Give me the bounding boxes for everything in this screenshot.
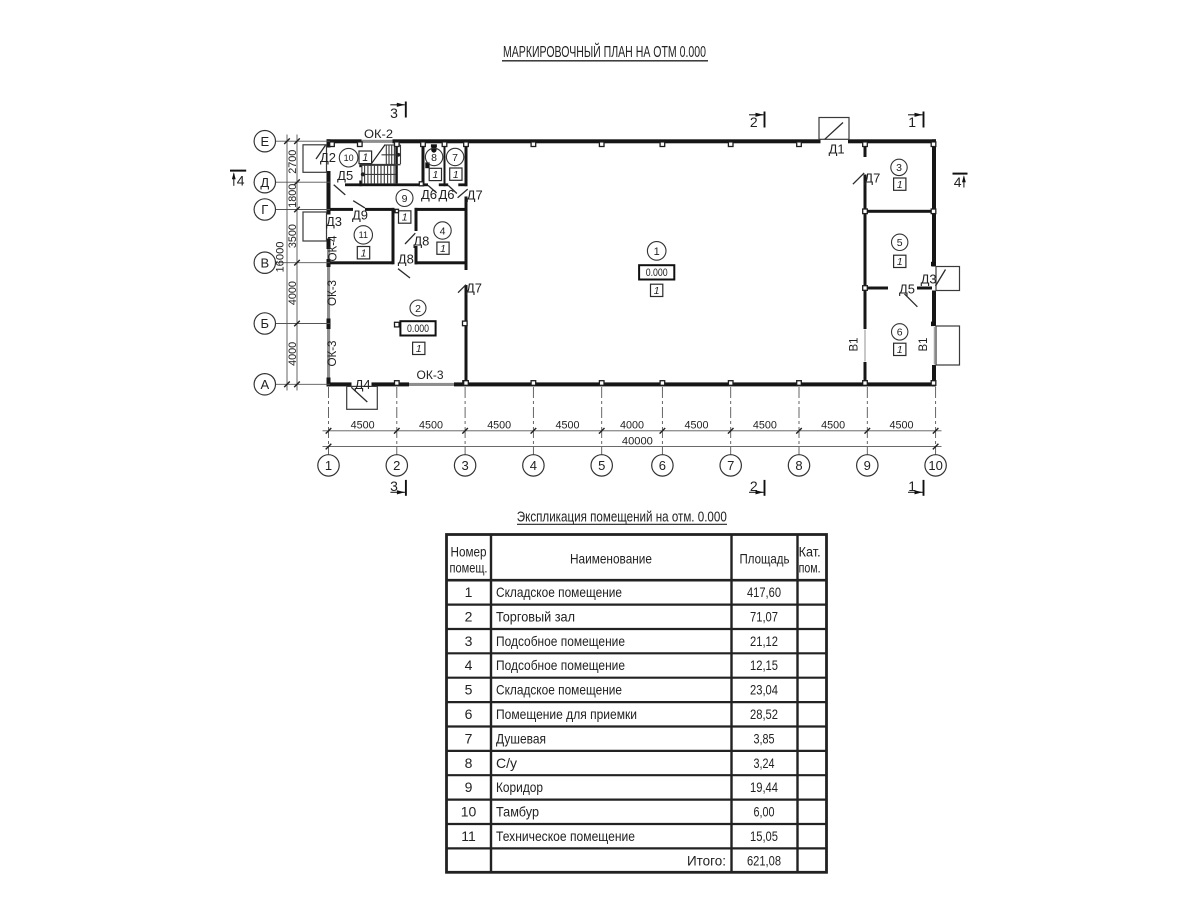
svg-text:11: 11 — [461, 828, 476, 844]
svg-text:ОК-3: ОК-3 — [417, 370, 444, 382]
svg-text:23,04: 23,04 — [750, 682, 778, 698]
svg-text:2700: 2700 — [287, 150, 299, 174]
svg-text:4: 4 — [237, 173, 245, 189]
svg-text:7: 7 — [465, 730, 473, 746]
svg-text:Итого:: Итого: — [687, 852, 726, 868]
svg-text:А: А — [260, 377, 269, 392]
svg-text:6: 6 — [897, 327, 903, 339]
svg-text:Д7: Д7 — [467, 189, 483, 203]
svg-text:0.000: 0.000 — [646, 267, 668, 279]
svg-text:4: 4 — [440, 225, 446, 237]
svg-text:4500: 4500 — [753, 420, 777, 432]
svg-text:2: 2 — [415, 303, 421, 315]
svg-text:2: 2 — [393, 458, 400, 473]
svg-text:4500: 4500 — [556, 420, 580, 432]
svg-text:Д8: Д8 — [398, 253, 414, 267]
svg-text:10: 10 — [344, 153, 354, 163]
svg-text:1: 1 — [416, 344, 422, 355]
svg-text:Д7: Д7 — [864, 172, 880, 186]
svg-text:Д: Д — [260, 175, 269, 190]
svg-text:Техническое помещение: Техническое помещение — [496, 828, 635, 844]
svg-text:4500: 4500 — [351, 420, 375, 432]
svg-text:Коридор: Коридор — [496, 779, 543, 795]
svg-text:Д6: Д6 — [439, 188, 455, 202]
svg-text:помещ.: помещ. — [450, 561, 488, 576]
svg-text:Торговый зал: Торговый зал — [496, 609, 575, 625]
svg-text:ОК-3: ОК-3 — [327, 341, 339, 367]
svg-text:Д9: Д9 — [352, 208, 368, 222]
svg-text:Е: Е — [260, 134, 269, 149]
svg-text:1: 1 — [440, 244, 446, 255]
svg-text:1: 1 — [654, 286, 660, 297]
svg-text:Площадь: Площадь — [740, 551, 790, 567]
svg-text:1: 1 — [897, 345, 903, 356]
svg-text:В1: В1 — [849, 338, 861, 352]
svg-text:7: 7 — [727, 458, 734, 473]
svg-text:В1: В1 — [918, 338, 930, 352]
svg-text:Тамбур: Тамбур — [496, 804, 539, 820]
svg-text:6: 6 — [659, 458, 666, 473]
svg-text:Д4: Д4 — [355, 378, 371, 392]
svg-text:15,05: 15,05 — [750, 828, 778, 844]
svg-text:Д3: Д3 — [326, 215, 342, 229]
svg-text:4000: 4000 — [287, 281, 299, 305]
svg-text:8: 8 — [795, 458, 802, 473]
svg-text:1: 1 — [654, 246, 660, 258]
svg-text:пом.: пом. — [799, 561, 821, 576]
svg-text:Д3: Д3 — [921, 273, 937, 287]
svg-text:28,52: 28,52 — [750, 706, 778, 722]
svg-text:Помещение для приемки: Помещение для приемки — [496, 706, 637, 722]
svg-text:12,15: 12,15 — [750, 657, 778, 673]
svg-text:ОК-4: ОК-4 — [328, 235, 340, 262]
svg-text:В: В — [260, 255, 269, 270]
svg-text:8: 8 — [431, 152, 437, 164]
svg-text:1: 1 — [897, 180, 903, 191]
svg-text:Складское помещение: Складское помещение — [496, 584, 622, 600]
svg-text:Подсобное помещение: Подсобное помещение — [496, 657, 625, 673]
svg-text:16000: 16000 — [275, 242, 287, 273]
svg-text:71,07: 71,07 — [750, 609, 778, 625]
svg-text:3500: 3500 — [287, 224, 299, 248]
svg-text:ОК-2: ОК-2 — [364, 129, 393, 141]
svg-text:9: 9 — [402, 193, 408, 205]
svg-text:4500: 4500 — [821, 420, 845, 432]
svg-text:1: 1 — [362, 152, 368, 164]
svg-text:3: 3 — [390, 105, 398, 121]
svg-text:9: 9 — [465, 779, 473, 795]
svg-text:Номер: Номер — [451, 545, 487, 560]
svg-text:4000: 4000 — [287, 342, 299, 366]
svg-text:МАРКИРОВОЧНЫЙ ПЛАН НА ОТМ 0.00: МАРКИРОВОЧНЫЙ ПЛАН НА ОТМ 0.000 — [503, 43, 706, 61]
svg-text:4500: 4500 — [890, 420, 914, 432]
svg-text:Д1: Д1 — [829, 143, 845, 157]
svg-text:Наименование: Наименование — [570, 551, 652, 567]
svg-text:С/у: С/у — [496, 755, 517, 771]
svg-text:3: 3 — [465, 633, 473, 649]
svg-text:9: 9 — [864, 458, 871, 473]
svg-text:Д8: Д8 — [413, 234, 429, 248]
svg-text:Подсобное помещение: Подсобное помещение — [496, 633, 625, 649]
svg-text:4500: 4500 — [685, 420, 709, 432]
svg-text:3: 3 — [896, 162, 902, 174]
svg-text:11: 11 — [359, 230, 368, 240]
svg-text:5: 5 — [598, 458, 605, 473]
svg-text:5: 5 — [897, 237, 903, 249]
svg-text:4000: 4000 — [620, 420, 644, 432]
svg-text:Кат.: Кат. — [799, 545, 821, 560]
svg-text:4: 4 — [530, 458, 537, 473]
svg-text:1: 1 — [361, 248, 367, 259]
svg-text:Складское помещение: Складское помещение — [496, 682, 622, 698]
svg-text:4500: 4500 — [419, 420, 443, 432]
svg-text:10: 10 — [461, 804, 477, 820]
svg-text:3,24: 3,24 — [754, 755, 775, 771]
svg-text:Б: Б — [261, 316, 270, 331]
svg-text:Д5: Д5 — [899, 282, 915, 296]
svg-text:4: 4 — [954, 174, 962, 190]
svg-text:8: 8 — [465, 755, 473, 771]
svg-text:Д7: Д7 — [466, 281, 482, 295]
svg-text:3: 3 — [461, 458, 468, 473]
svg-text:1: 1 — [465, 584, 473, 600]
svg-text:417,60: 417,60 — [747, 584, 781, 600]
svg-text:19,44: 19,44 — [750, 779, 778, 795]
svg-text:ОК-3: ОК-3 — [327, 280, 339, 306]
svg-text:Душевая: Душевая — [496, 730, 546, 746]
svg-text:6: 6 — [465, 706, 473, 722]
svg-text:1: 1 — [402, 213, 408, 224]
svg-text:21,12: 21,12 — [750, 633, 778, 649]
svg-text:7: 7 — [452, 152, 458, 164]
svg-text:Экспликация помещений на отм.: Экспликация помещений на отм. 0.000 — [517, 509, 727, 525]
svg-text:10: 10 — [928, 458, 942, 473]
svg-text:0.000: 0.000 — [407, 323, 429, 335]
svg-text:1: 1 — [453, 170, 459, 181]
svg-text:Д2: Д2 — [320, 151, 336, 165]
svg-text:3,85: 3,85 — [754, 730, 775, 746]
svg-text:1: 1 — [433, 170, 439, 181]
svg-text:1: 1 — [325, 458, 332, 473]
svg-text:6,00: 6,00 — [754, 804, 775, 820]
svg-text:621,08: 621,08 — [747, 852, 781, 868]
svg-text:1: 1 — [897, 257, 903, 268]
svg-text:5: 5 — [465, 682, 473, 698]
svg-text:Г: Г — [261, 202, 268, 217]
svg-text:4: 4 — [465, 657, 473, 673]
svg-text:1800: 1800 — [287, 184, 299, 208]
svg-text:40000: 40000 — [622, 436, 653, 448]
svg-text:4500: 4500 — [487, 420, 511, 432]
svg-text:2: 2 — [465, 609, 473, 625]
svg-text:Д5: Д5 — [337, 169, 353, 183]
svg-text:Д6: Д6 — [421, 188, 437, 202]
